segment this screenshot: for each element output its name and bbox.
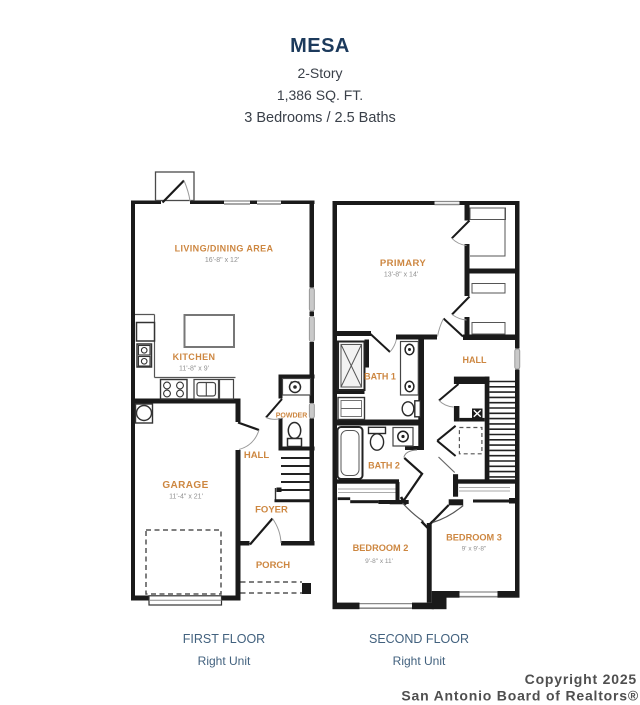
svg-text:BATH 1: BATH 1 <box>364 372 396 382</box>
svg-text:9'-8" x 11': 9'-8" x 11' <box>365 558 393 565</box>
svg-text:HALL: HALL <box>244 450 270 461</box>
svg-text:SECOND FLOOR: SECOND FLOOR <box>369 632 469 646</box>
svg-text:MESA: MESA <box>290 35 350 57</box>
svg-text:BATH 2: BATH 2 <box>368 461 400 471</box>
svg-text:BEDROOM 3: BEDROOM 3 <box>446 533 502 543</box>
svg-text:BEDROOM 2: BEDROOM 2 <box>353 543 409 553</box>
svg-text:POWDER: POWDER <box>276 413 308 420</box>
svg-text:13'-8" x 14': 13'-8" x 14' <box>384 272 418 279</box>
svg-text:FOYER: FOYER <box>255 505 288 516</box>
svg-text:9' x 9'-8": 9' x 9'-8" <box>462 546 487 553</box>
svg-text:FIRST FLOOR: FIRST FLOOR <box>183 632 265 646</box>
svg-text:PRIMARY: PRIMARY <box>380 258 427 269</box>
svg-text:3 Bedrooms / 2.5 Baths: 3 Bedrooms / 2.5 Baths <box>244 110 396 126</box>
svg-text:KITCHEN: KITCHEN <box>173 352 216 362</box>
svg-text:Right Unit: Right Unit <box>198 654 251 668</box>
svg-text:1,386 SQ. FT.: 1,386 SQ. FT. <box>277 87 363 103</box>
svg-text:PORCH: PORCH <box>256 560 290 571</box>
svg-text:2-Story: 2-Story <box>297 65 342 81</box>
svg-text:Copyright 2025: Copyright 2025 <box>525 671 637 687</box>
svg-text:11'-8" x 9': 11'-8" x 9' <box>179 366 209 373</box>
svg-text:11'-4" x 21': 11'-4" x 21' <box>169 494 203 501</box>
svg-text:HALL: HALL <box>463 355 487 365</box>
svg-text:Right Unit: Right Unit <box>393 654 446 668</box>
svg-text:LIVING/DINING AREA: LIVING/DINING AREA <box>175 244 274 254</box>
svg-text:16'-8" x 12': 16'-8" x 12' <box>205 257 239 264</box>
svg-text:GARAGE: GARAGE <box>162 480 208 491</box>
svg-text:San Antonio Board of Realtors®: San Antonio Board of Realtors® <box>401 688 639 704</box>
